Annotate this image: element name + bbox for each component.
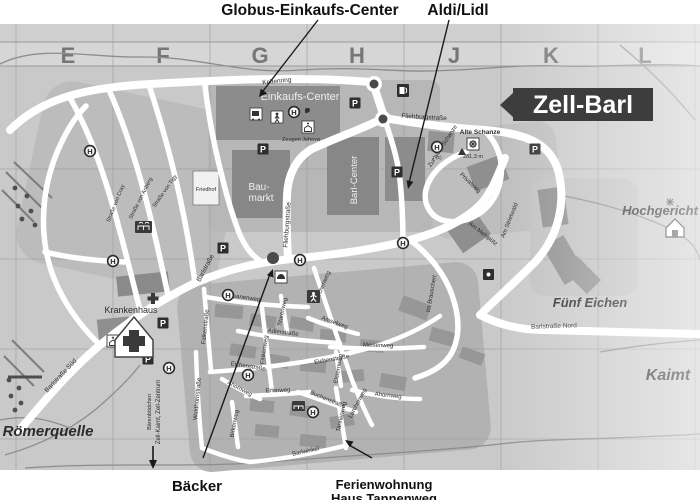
grid-letter-g: G bbox=[251, 43, 268, 68]
zeugen-jehova-label: Zeugen Jehova bbox=[282, 137, 321, 143]
parking-icon bbox=[350, 98, 361, 109]
bus-stop-icon bbox=[295, 255, 306, 266]
bus-stop-icon bbox=[398, 238, 409, 249]
bakery-icon bbox=[275, 271, 287, 283]
bus-route-label: 1 (1) bbox=[432, 155, 442, 160]
picnic-icon bbox=[135, 221, 152, 233]
pedestrian-icon bbox=[271, 111, 283, 123]
street-erlenweg: Erlenweg bbox=[265, 388, 290, 395]
bus-stop-icon bbox=[223, 290, 234, 301]
town-map: P H E F G H J K L bbox=[0, 0, 700, 500]
callout-aldi-lidl: Aldi/Lidl bbox=[427, 2, 488, 19]
bus-stop-icon bbox=[432, 142, 443, 153]
baumarkt-label-2: markt bbox=[249, 193, 274, 204]
direction-sign-line2: Zell-Kaimt, Zell-Zentrum bbox=[156, 380, 162, 444]
bus-stop-icon bbox=[308, 407, 319, 418]
playground-icon bbox=[307, 290, 320, 303]
callout-ferienwohnung: Ferienwohnung bbox=[336, 477, 433, 492]
baumarkt-label-1: Bau- bbox=[248, 182, 269, 193]
callout-baecker: Bäcker bbox=[172, 478, 222, 495]
grid-letter-j: J bbox=[448, 43, 460, 68]
bus-stop-icon bbox=[85, 146, 96, 157]
elevation-label: 281,3 m bbox=[463, 154, 483, 160]
bus-stop-icon bbox=[164, 363, 175, 374]
picnic-icon bbox=[292, 401, 305, 411]
grid-letter-f: F bbox=[156, 43, 169, 68]
shrine-icon bbox=[483, 269, 494, 280]
alte-schanze-label: Alte Schanze bbox=[460, 129, 501, 136]
town-banner: Zell-Barl bbox=[500, 88, 653, 121]
baecker-location-dot bbox=[267, 252, 279, 264]
barl-center-label: Barl-Center bbox=[349, 156, 360, 205]
shop-icon bbox=[250, 108, 262, 120]
grid-letter-h: H bbox=[349, 43, 365, 68]
parking-icon bbox=[218, 243, 229, 254]
parking-icon bbox=[258, 144, 269, 155]
bus-stop-icon bbox=[289, 107, 300, 118]
map-page: P H E F G H J K L bbox=[0, 0, 700, 500]
town-banner-label: Zell-Barl bbox=[533, 91, 633, 119]
direction-sign-line1: Bärenbödchen bbox=[147, 394, 153, 430]
einkaufs-center-label: Einkaufs-Center bbox=[261, 91, 340, 103]
callout-haus-tannenweg: Haus Tannenweg bbox=[331, 491, 437, 500]
bus-stop-icon bbox=[108, 256, 119, 267]
friedhof-label: Friedhof bbox=[196, 187, 217, 193]
callout-globus: Globus-Einkaufs-Center bbox=[221, 2, 398, 19]
krankenhaus-label: Krankenhaus bbox=[104, 305, 158, 315]
grid-letter-e: E bbox=[61, 43, 76, 68]
fuel-station-icon bbox=[397, 84, 409, 97]
viewpoint-icon bbox=[467, 138, 479, 150]
roemerquelle-label: Römerquelle bbox=[3, 423, 94, 440]
bus-stop-icon bbox=[243, 370, 254, 381]
parking-icon bbox=[392, 167, 403, 178]
church-icon bbox=[302, 121, 314, 133]
parking-icon bbox=[158, 318, 169, 329]
street-meisenweg: Meisenweg bbox=[363, 342, 394, 349]
